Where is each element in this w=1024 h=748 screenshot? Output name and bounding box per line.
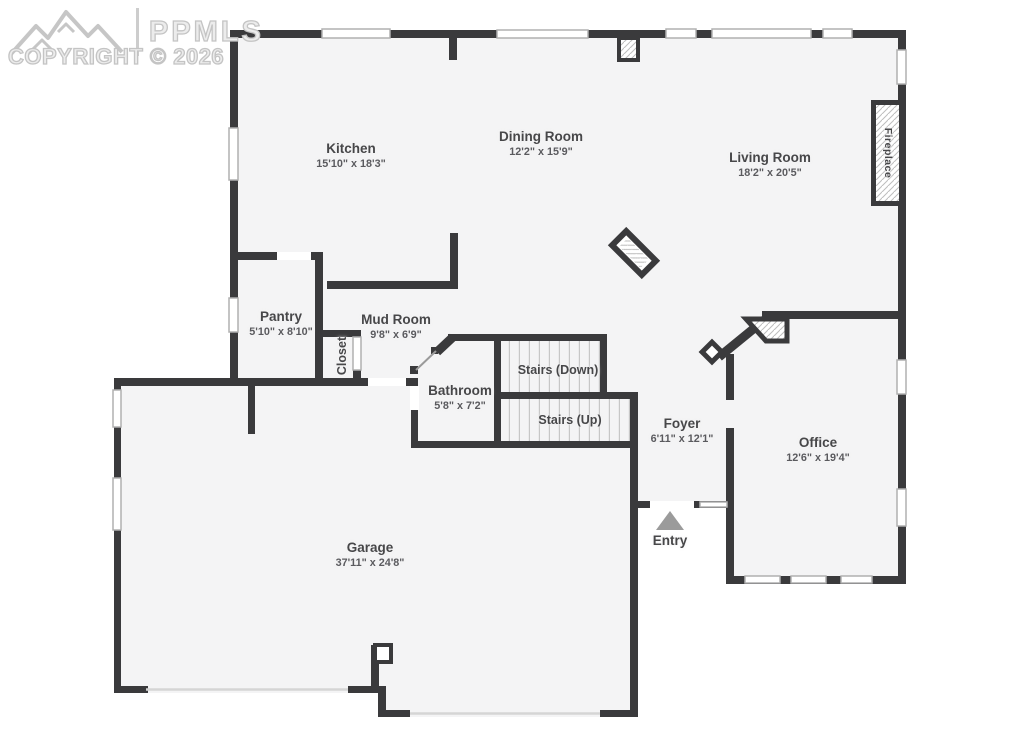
label-stairs-up: Stairs (Up) bbox=[538, 413, 601, 427]
label-fireplace: Fireplace bbox=[882, 128, 894, 179]
room-label-mud-room: Mud Room 9'8" x 6'9" bbox=[361, 312, 431, 342]
room-label-kitchen: Kitchen 15'10" x 18'3" bbox=[316, 141, 385, 171]
floor-plan-drawing bbox=[0, 0, 1024, 748]
room-label-closet: Closet bbox=[335, 337, 349, 375]
label-stairs-down: Stairs (Down) bbox=[518, 363, 599, 377]
floor-plan-page: PPMLS COPYRIGHT © 2026 bbox=[0, 0, 1024, 748]
room-label-pantry: Pantry 5'10" x 8'10" bbox=[249, 309, 312, 339]
room-label-garage: Garage 37'11" x 24'8" bbox=[336, 540, 405, 570]
room-label-office: Office 12'6" x 19'4" bbox=[786, 435, 849, 465]
room-label-bathroom: Bathroom 5'8" x 7'2" bbox=[428, 383, 492, 413]
label-entry: Entry bbox=[653, 533, 688, 549]
room-label-dining-room: Dining Room 12'2" x 15'9" bbox=[499, 129, 583, 159]
garage-notch bbox=[375, 645, 391, 662]
room-label-living-room: Living Room 18'2" x 20'5" bbox=[729, 150, 811, 180]
entry-arrow-icon bbox=[656, 511, 684, 530]
chimney-stub bbox=[619, 38, 638, 60]
watermark: PPMLS COPYRIGHT © 2026 bbox=[8, 6, 264, 70]
room-label-foyer: Foyer 6'11" x 12'1" bbox=[651, 416, 714, 446]
